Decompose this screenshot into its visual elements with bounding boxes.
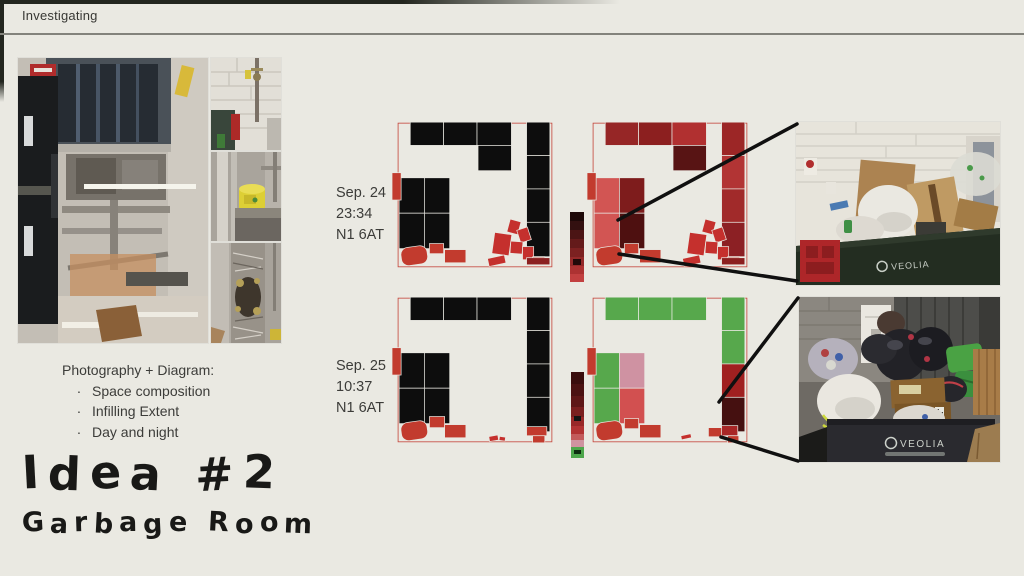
bullet-dot: · xyxy=(74,422,84,443)
bullet-dot: · xyxy=(74,401,84,422)
idea-subtitle: Garbage Room xyxy=(22,508,318,539)
diagram-sep24-fill-extent xyxy=(585,118,757,275)
caption-bullet: · Day and night xyxy=(62,422,292,443)
bullet-label: Space composition xyxy=(92,381,210,402)
slide-canvas: Investigating xyxy=(0,0,1024,576)
bullet-dot: · xyxy=(74,381,84,402)
dark-edge-top xyxy=(0,0,620,4)
photo-foil-pipe-damaged xyxy=(211,243,281,343)
page-title: Investigating xyxy=(22,8,98,23)
bullet-label: Day and night xyxy=(92,422,178,443)
bin-brand-text: VEOLIA xyxy=(900,439,945,450)
header-divider xyxy=(0,33,1024,35)
diagram-sep25-fill-extent xyxy=(585,293,757,450)
photo-garbage-room-interior xyxy=(18,58,208,343)
idea-title: Idea #2 xyxy=(22,446,284,500)
diagram-sep24-objects xyxy=(390,118,562,275)
chute-strip-sep25 xyxy=(571,372,584,458)
dark-edge-left xyxy=(0,0,4,102)
caption-bullet: · Space composition xyxy=(62,381,292,402)
photo-bin-cardboard-detail: VEOLIA xyxy=(796,122,1000,285)
diagram-sep25-objects xyxy=(390,293,562,450)
bullet-label: Infilling Extent xyxy=(92,401,179,422)
caption-block: Photography + Diagram: · Space compositi… xyxy=(62,360,292,442)
photo-yellow-bucket-ledge xyxy=(211,152,281,241)
chute-strip-sep24 xyxy=(570,212,584,282)
caption-bullet: · Infilling Extent xyxy=(62,401,292,422)
caption-title: Photography + Diagram: xyxy=(62,360,292,381)
photo-wall-pipe-valve xyxy=(211,58,281,150)
photo-bin-overflowing-bags: VEOLIA xyxy=(799,297,1000,462)
